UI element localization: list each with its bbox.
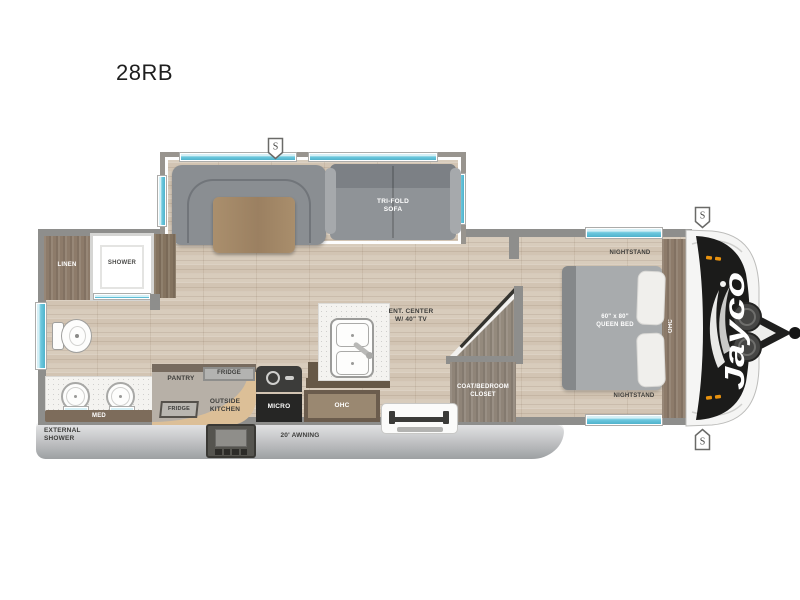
nightstand-label-bottom: NIGHTSTAND: [608, 393, 660, 401]
pantry-label: PANTRY: [156, 375, 206, 383]
sink-drain-bottom: [351, 362, 354, 365]
faucet-base: [366, 352, 373, 359]
model-title: 28RB: [116, 60, 173, 86]
jayco-logo: Jayco: [719, 272, 750, 390]
hatch-vent-grid: [215, 449, 247, 455]
ent-wall-vertical: [514, 286, 523, 362]
sofa-label: TRI-FOLD SOFA: [340, 198, 446, 215]
external-shower-label: EXTERNAL SHOWER: [44, 427, 81, 444]
dinette-table: [213, 197, 295, 253]
sofa-armrest-left: [325, 168, 336, 234]
speaker-marker-front-top: S: [694, 206, 711, 229]
micro-label: MICRO: [256, 403, 302, 411]
awning-bar: [36, 423, 564, 459]
outside-kitchen-hatch-panel: [215, 429, 247, 447]
burner-icon: [266, 371, 280, 385]
speaker-marker-front-bottom: S: [694, 428, 711, 451]
bath-wall-stub: [150, 294, 160, 310]
hitch-coupler-ball: [789, 327, 800, 339]
bath-wardrobe: [154, 234, 176, 298]
linen-label: LINEN: [44, 262, 90, 270]
entry-grab-handle: [393, 417, 446, 422]
med-label: MED: [45, 413, 153, 421]
floorplan-canvas: 28RB EXTERNAL SHOWER 20' AWNING TRI-FOLD…: [0, 0, 800, 600]
shower-glass: [94, 294, 150, 299]
awning-label: 20' AWNING: [240, 432, 360, 440]
entry-step: [397, 427, 443, 432]
entry-handle-post-left: [389, 411, 395, 424]
pillow-bottom: [636, 333, 666, 388]
fridge-label: FRIDGE: [203, 370, 255, 378]
queen-bed-label: 60" x 80" QUEEN BED: [575, 314, 655, 330]
bed-foot-roll: [562, 266, 576, 390]
outside-fridge-label: FRIDGE: [160, 406, 198, 413]
shower-label: SHOWER: [92, 260, 152, 268]
outside-kitchen-label: OUTSIDE KITCHEN: [196, 398, 254, 415]
vanity-drain-right: [119, 395, 122, 398]
slideout-window-right: [309, 153, 437, 161]
sink-drain-top: [351, 334, 354, 337]
vanity-drain-left: [74, 395, 77, 398]
bedroom-window-top: [586, 228, 662, 238]
ent-center-label: ENT. CENTER W/ 40" TV: [378, 308, 444, 325]
svg-text:S: S: [700, 211, 706, 222]
nightstand-label-top: NIGHTSTAND: [604, 250, 656, 258]
entry-handle-post-right: [443, 411, 449, 424]
bedroom-window-bottom: [586, 415, 662, 425]
wall-bedroom-stub: [509, 237, 519, 259]
bathroom-window: [36, 303, 46, 369]
svg-text:S: S: [700, 437, 706, 448]
svg-text:S: S: [273, 142, 279, 153]
speaker-marker-slide: S: [267, 137, 284, 160]
sofa-armrest-right: [450, 168, 461, 234]
kitchen-ohc-label: OHC: [304, 402, 380, 410]
range-handle: [285, 376, 294, 380]
coat-closet-label: COAT/BEDROOM CLOSET: [448, 384, 518, 400]
front-cap: Jayco: [678, 222, 800, 434]
slideout-window-end-left: [158, 176, 166, 226]
toilet-flush-dot: [75, 334, 79, 338]
